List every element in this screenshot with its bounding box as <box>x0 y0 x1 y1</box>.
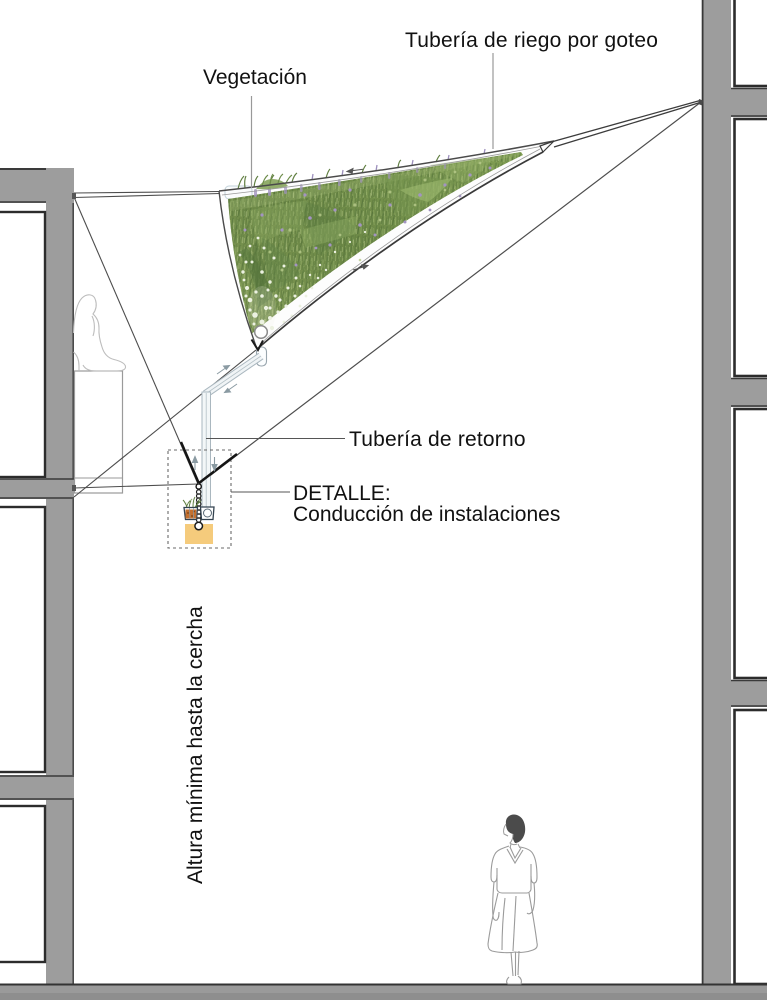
svg-text:Altura mínima hasta la cercha: Altura mínima hasta la cercha <box>184 606 207 884</box>
svg-text:Vegetación: Vegetación <box>203 66 307 89</box>
svg-text:Conducción de instalaciones: Conducción de instalaciones <box>293 503 560 526</box>
svg-text:Tubería de retorno: Tubería de retorno <box>349 428 526 451</box>
svg-text:DETALLE:: DETALLE: <box>293 482 391 505</box>
svg-text:Tubería de riego por goteo: Tubería de riego por goteo <box>405 29 658 52</box>
